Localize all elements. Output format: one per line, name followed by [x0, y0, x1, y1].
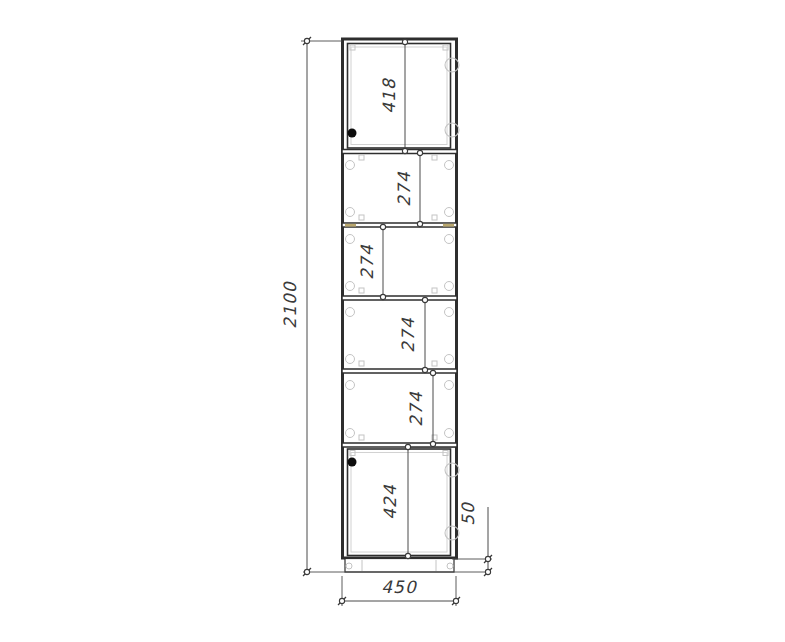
dimension-endpoint	[304, 38, 309, 43]
drawing-canvas: 2100 418 274 274 274 274 424 50 450	[0, 0, 785, 642]
dim-label-section-4: 274	[398, 317, 418, 353]
shelf-edge-band	[443, 224, 454, 227]
dim-label-section-1: 418	[379, 77, 399, 114]
dimension-endpoint	[380, 294, 385, 299]
plinth	[345, 559, 454, 573]
dim-label-plinth-height: 50	[458, 501, 478, 526]
dimension-endpoint	[422, 367, 427, 372]
dimension-endpoint	[485, 569, 490, 574]
shelf-edge-band	[345, 224, 356, 227]
dim-label-overall-width: 450	[381, 577, 418, 597]
dimension-endpoint	[430, 441, 435, 446]
dimension-endpoint	[339, 598, 344, 603]
dimension-endpoint	[417, 150, 422, 155]
dimension-endpoint	[380, 224, 385, 229]
dim-label-overall-height: 2100	[280, 280, 300, 328]
dimension-endpoint	[453, 598, 458, 603]
shelf-line	[342, 443, 457, 447]
shelf-line	[342, 369, 457, 373]
shelf-line	[342, 223, 457, 227]
dimension-endpoint	[402, 39, 407, 44]
shelf-line	[342, 296, 457, 300]
dimension-endpoint	[417, 221, 422, 226]
dimension-endpoint	[405, 444, 410, 449]
dim-label-section-5: 274	[406, 391, 426, 427]
dimension-endpoint	[422, 297, 427, 302]
dim-label-section-6: 424	[380, 484, 400, 520]
dim-label-section-2: 274	[394, 171, 414, 207]
door-handle-icon	[348, 458, 357, 467]
dimension-endpoint	[405, 553, 410, 558]
top-door	[348, 44, 451, 149]
dimension-endpoint	[485, 556, 490, 561]
door-handle-icon	[348, 129, 357, 138]
cabinet-elevation-drawing: 2100 418 274 274 274 274 424 50 450	[0, 0, 785, 642]
shelf-line	[342, 150, 457, 154]
dim-label-section-3: 274	[357, 244, 377, 280]
dimension-endpoint	[304, 569, 309, 574]
dimension-endpoint	[430, 370, 435, 375]
dimension-endpoint	[402, 148, 407, 153]
